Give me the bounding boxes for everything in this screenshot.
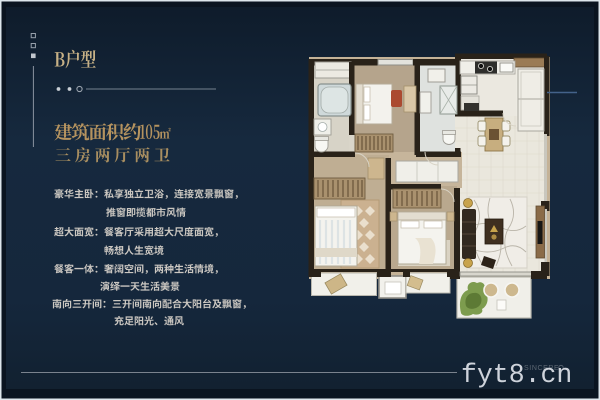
svg-text:fyt8.cn: fyt8.cn xyxy=(461,360,572,390)
